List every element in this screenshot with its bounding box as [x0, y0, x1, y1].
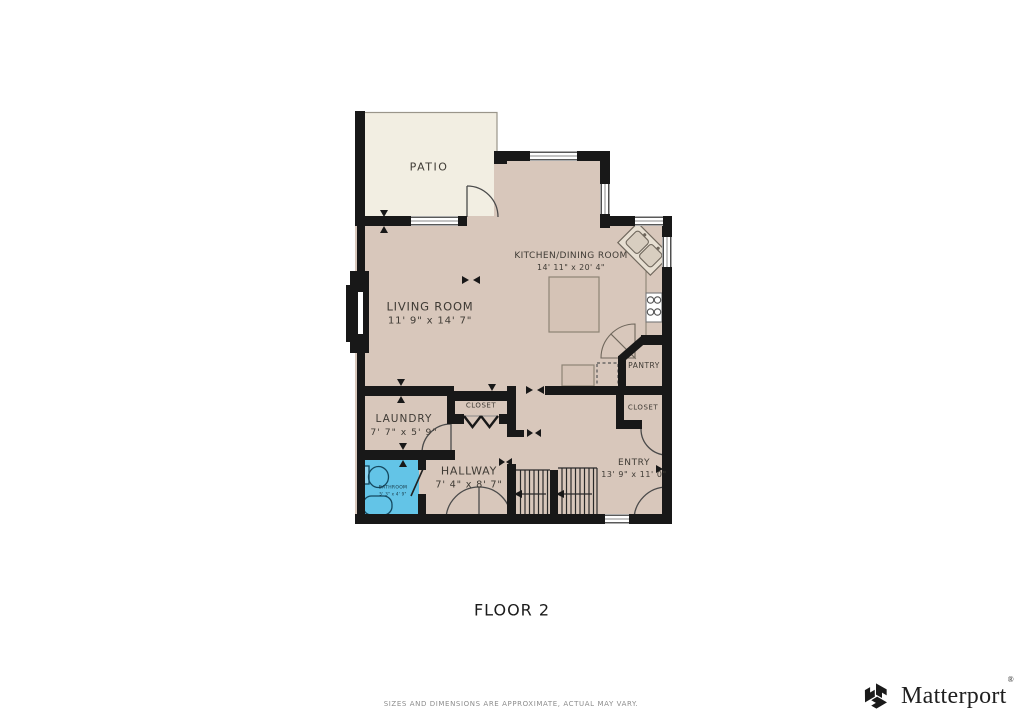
room-dims: 5' 3" x 4' 9"	[379, 491, 407, 496]
matterport-logo: Matterport®	[860, 680, 1013, 712]
room-label-living-room: LIVING ROOM 11' 9" x 14' 7"	[386, 300, 473, 329]
left-outer-wall	[357, 216, 365, 524]
room-name: HALLWAY	[435, 464, 502, 479]
room-label-closet-right: CLOSET	[628, 403, 658, 412]
matterport-pinwheel-icon	[860, 680, 892, 712]
patio-sliding-door	[411, 216, 458, 226]
room-label-kitchen-dining: KITCHEN/DINING ROOM 14' 11" x 20' 4"	[514, 251, 627, 273]
room-name: ENTRY	[601, 458, 667, 470]
patio-left-wall	[355, 111, 365, 226]
room-name: LIVING ROOM	[386, 300, 473, 315]
right-wall-window	[662, 237, 672, 267]
room-dims: 11' 9" x 14' 7"	[386, 315, 473, 328]
floor-plan-page: PATIO KITCHEN/DINING ROOM 14' 11" x 20' …	[0, 0, 1024, 724]
room-dims: 14' 11" x 20' 4"	[514, 263, 627, 273]
room-label-closet-center: CLOSET	[466, 401, 496, 410]
room-dims: 7' 4" x 8' 7"	[435, 479, 502, 492]
room-label-patio: PATIO	[410, 161, 449, 176]
room-label-bathroom: BATHROOM 5' 3" x 4' 9"	[379, 485, 407, 496]
registered-mark: ®	[1008, 675, 1014, 684]
entry-window	[605, 514, 629, 524]
room-dims: 13' 9" x 11' 0"	[601, 470, 667, 480]
room-name: PATIO	[410, 161, 449, 176]
room-name: CLOSET	[466, 401, 496, 410]
counter	[562, 365, 594, 386]
kitchen-side-window	[600, 184, 610, 214]
floor-label: FLOOR 2	[474, 601, 550, 620]
kitchen-window	[530, 151, 577, 161]
fireplace-slot	[358, 292, 363, 334]
room-name: LAUNDRY	[370, 413, 437, 427]
room-label-hallway: HALLWAY 7' 4" x 8' 7"	[435, 464, 502, 491]
matterport-wordmark: Matterport®	[901, 683, 1013, 710]
brand-name: Matterport	[901, 683, 1007, 709]
disclaimer-text: SIZES AND DIMENSIONS ARE APPROXIMATE, AC…	[384, 700, 639, 708]
room-name: PANTRY	[628, 361, 660, 371]
room-name: CLOSET	[628, 403, 658, 412]
room-label-laundry: LAUNDRY 7' 7" x 5' 9"	[370, 413, 437, 439]
dining-top-window	[635, 216, 663, 226]
room-dims: 7' 7" x 5' 9"	[370, 427, 437, 439]
dining-table	[549, 277, 599, 332]
room-label-pantry: PANTRY	[628, 361, 660, 371]
room-name: KITCHEN/DINING ROOM	[514, 251, 627, 263]
room-label-entry: ENTRY 13' 9" x 11' 0"	[601, 458, 667, 480]
